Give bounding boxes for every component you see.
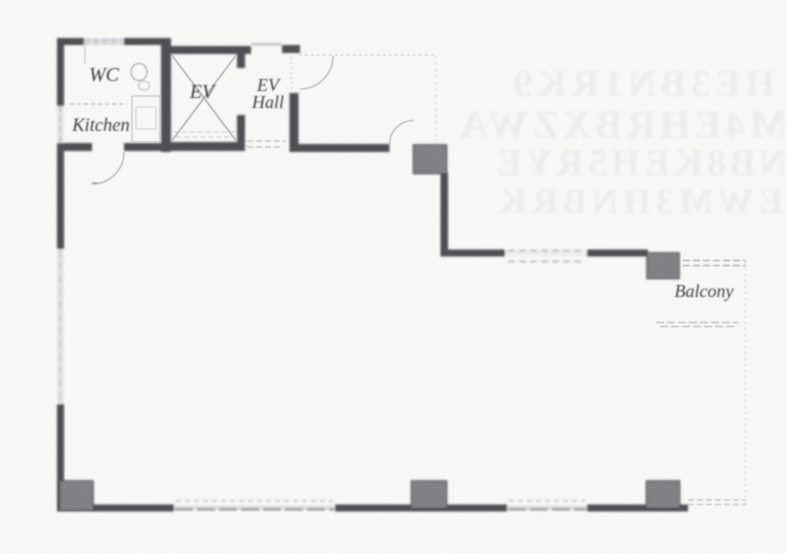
svg-text:EV: EV (189, 81, 217, 103)
svg-text:WC: WC (89, 64, 120, 86)
svg-text:Balcony: Balcony (675, 281, 734, 301)
svg-text:Kitchen: Kitchen (71, 116, 130, 136)
svg-text:Hall: Hall (251, 92, 284, 112)
